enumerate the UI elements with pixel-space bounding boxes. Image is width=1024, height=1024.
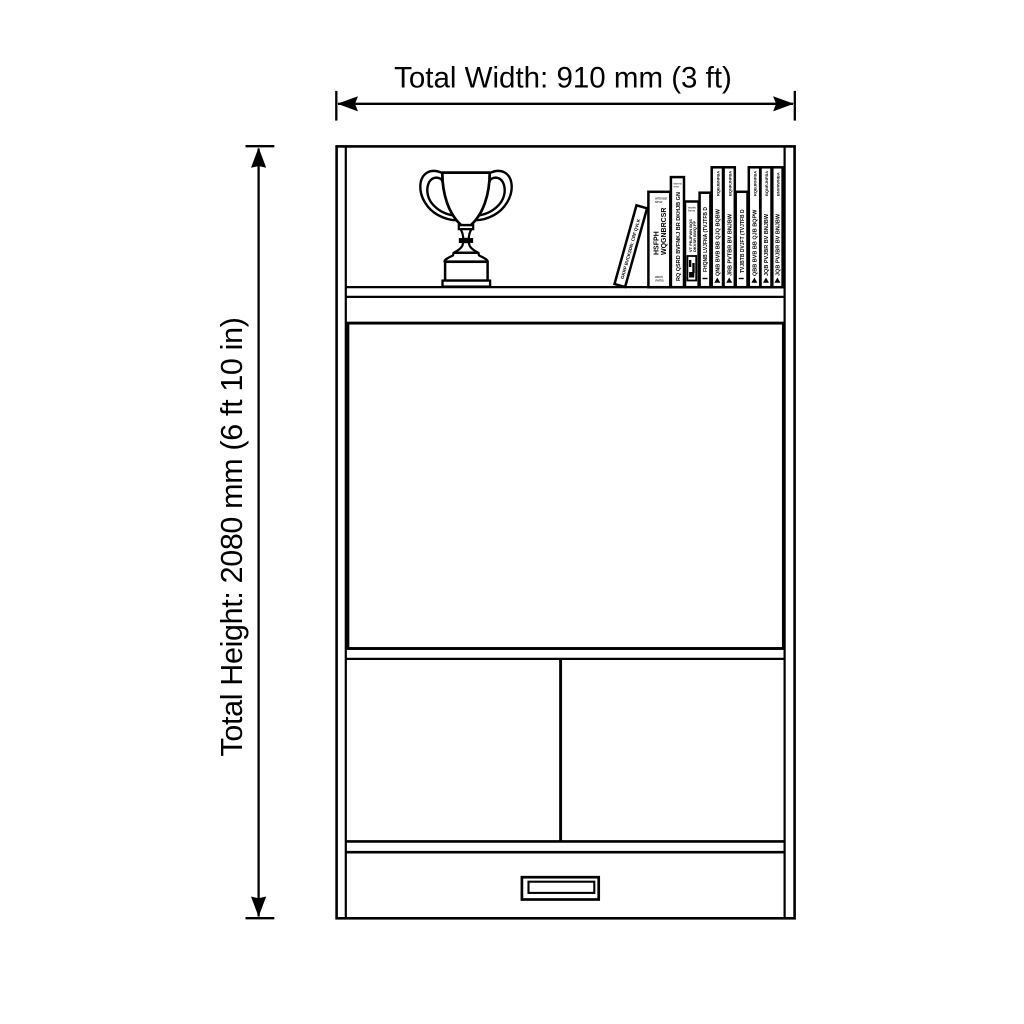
svg-text:Total Height: 2080 mm (6 ft 10: Total Height: 2080 mm (6 ft 10 in) (215, 317, 249, 756)
svg-text:RQ QSRD BVFNKJ BR DKHJB GN: RQ QSRD BVFNKJ BR DKHJB GN (676, 192, 682, 281)
svg-text:QNB BVB BB QJQ BQBW: QNB BVB BB QJQ BQBW (716, 208, 722, 276)
svg-text:BNVRWNBA: BNVRWNBA (776, 172, 781, 196)
svg-text:BQNRJNFBA: BQNRJNFBA (764, 171, 769, 196)
svg-text:JQB PVJBR BV BNJBW: JQB PVJBR BV BNJBW (764, 213, 770, 276)
svg-text:QBB BVB BB QJB BQPW: QBB BVB BB QJB BQPW (753, 209, 759, 276)
svg-text:Total Width: 910 mm (3 ft): Total Width: 910 mm (3 ft) (394, 62, 732, 95)
svg-text:TVJBTB DVJFT (TVJTFB D: TVJBTB DVJFT (TVJTFB D (740, 209, 746, 273)
svg-text:FHQNB LVJFNA (TVJTFB D: FHQNB LVJFNA (TVJTFB D (703, 207, 709, 272)
svg-text:WQGNBRCSR: WQGNBRCSR (661, 208, 668, 255)
svg-text:slrvw: slrvw (655, 200, 663, 204)
svg-text:DKVSR BWQ FP: DKVSR BWQ FP (692, 221, 697, 252)
svg-text:snvr: snvr (674, 185, 680, 189)
svg-text:vwrba: vwrba (655, 278, 664, 282)
svg-text:bsnw: bsnw (688, 209, 696, 213)
svg-text:BQNRJNFBA: BQNRJNFBA (727, 171, 732, 196)
svg-text:RQBJBNFBA: RQBJBNFBA (716, 171, 721, 196)
svg-text:HSFPH: HSFPH (654, 231, 661, 255)
svg-text:RQBJRNFBA: RQBJRNFBA (753, 171, 758, 196)
svg-text:JRB PVTBR BV BNJBW: JRB PVTBR BV BNJBW (727, 213, 733, 276)
svg-text:JQB PVJBR BV BNJBW: JQB PVJBR BV BNJBW (776, 213, 782, 276)
